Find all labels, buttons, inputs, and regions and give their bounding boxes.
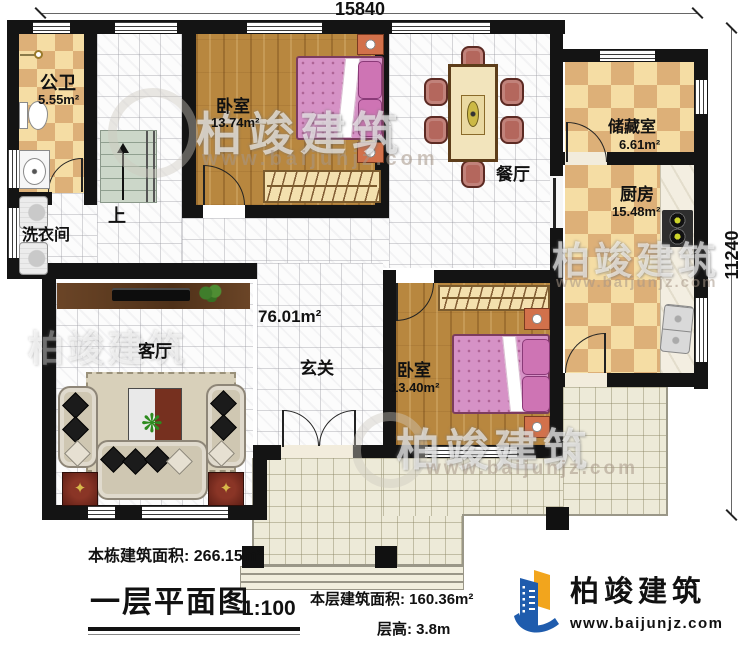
bathroom-label: 公卫 bbox=[40, 74, 76, 92]
title-underline-thin bbox=[88, 634, 300, 635]
cabinet-plant bbox=[198, 284, 224, 302]
coffee-table-plant: ❋ bbox=[141, 410, 163, 436]
living-label: 客厅 bbox=[138, 343, 172, 360]
total-building-area: 本栋建筑面积: 266.15m² bbox=[88, 549, 262, 565]
wall-bedroom1-south bbox=[245, 205, 389, 218]
title-underline bbox=[88, 627, 300, 631]
company-logo-name: 柏竣建筑 bbox=[570, 578, 706, 607]
bedroom1-pillow bbox=[358, 99, 382, 137]
wall-kitchen-south bbox=[552, 373, 565, 387]
bedroom1-area: 13.74m² bbox=[211, 116, 259, 129]
end-table: ✦ bbox=[208, 472, 244, 506]
window-west bbox=[8, 150, 19, 188]
bedroom2-nightstand bbox=[524, 308, 550, 330]
bedroom2-nightstand bbox=[524, 416, 550, 438]
floor-height: 层高: 3.8m bbox=[377, 622, 450, 637]
dining-kitchen-door-leaf bbox=[553, 178, 556, 228]
end-table: ✦ bbox=[62, 472, 98, 506]
scale-value: 1:100 bbox=[242, 598, 296, 619]
bedroom1-nightstand bbox=[357, 34, 384, 55]
corridor-floor bbox=[182, 218, 389, 268]
foyer-label: 玄关 bbox=[300, 360, 334, 377]
wall-bathroom-east bbox=[84, 33, 97, 205]
window-living-south bbox=[88, 506, 115, 519]
window-storage-east bbox=[695, 80, 707, 114]
wall-bedroom2-north bbox=[434, 270, 563, 283]
porch-step bbox=[240, 574, 464, 582]
bedroom2-door-leaf bbox=[396, 283, 398, 321]
wall-entry-left bbox=[253, 445, 281, 460]
hall-area: 76.01m² bbox=[258, 308, 321, 325]
terrace-column bbox=[546, 507, 569, 530]
tv bbox=[112, 288, 190, 301]
bedroom1-door-leaf bbox=[203, 165, 205, 205]
dining-chair bbox=[500, 78, 524, 106]
dining-label: 餐厅 bbox=[496, 166, 530, 183]
foyer-floor bbox=[257, 263, 383, 445]
dining-chair bbox=[424, 78, 448, 106]
dining-chair bbox=[424, 116, 448, 144]
table-centerpiece bbox=[467, 101, 479, 127]
bedroom2-label: 卧室 bbox=[397, 362, 431, 379]
stair-arrow-shaft bbox=[122, 152, 124, 200]
company-logo-icon bbox=[506, 566, 564, 638]
wall-storage-south bbox=[607, 152, 708, 165]
porch-step bbox=[240, 566, 464, 574]
window-living-south bbox=[142, 506, 228, 519]
window-bedroom2-south bbox=[425, 446, 517, 457]
bathroom-door-leaf bbox=[81, 158, 83, 192]
floor-area: 本层建筑面积: 160.36m² bbox=[310, 592, 473, 607]
terrace-border bbox=[462, 516, 464, 566]
window-kitchen-east bbox=[695, 298, 707, 362]
storage-door-leaf bbox=[566, 122, 568, 162]
kitchen-sink bbox=[660, 304, 695, 355]
stair-arrow-head bbox=[117, 143, 129, 153]
washing-machine bbox=[19, 196, 48, 229]
porch-step bbox=[240, 582, 464, 590]
bedroom2-pillow bbox=[522, 376, 550, 412]
wall-bedroom2-east bbox=[550, 283, 563, 458]
toilet-tank bbox=[19, 102, 28, 129]
wall-living-west bbox=[42, 279, 56, 520]
window-storage-north bbox=[600, 50, 655, 61]
entry-door-opening bbox=[281, 445, 353, 458]
dining-kitchen-opening bbox=[550, 176, 563, 228]
window-north bbox=[392, 22, 490, 33]
window-west bbox=[8, 208, 19, 258]
wall-entry-right bbox=[353, 445, 383, 458]
kitchen-label: 厨房 bbox=[620, 186, 654, 203]
kitchen-area: 15.48m² bbox=[612, 205, 660, 218]
dimension-right-value: 11240 bbox=[723, 210, 743, 300]
stairs-up-label: 上 bbox=[108, 207, 126, 225]
towel-ring bbox=[34, 50, 43, 59]
dimension-top-value: 15840 bbox=[320, 0, 400, 18]
window-north bbox=[115, 22, 177, 33]
bedroom2-area: 13.40m² bbox=[391, 381, 439, 394]
bedroom1-label: 卧室 bbox=[216, 98, 250, 115]
bedroom1-wardrobe-rail bbox=[267, 185, 377, 187]
bedroom1-nightstand bbox=[357, 142, 384, 163]
bathroom-area: 5.55m² bbox=[38, 93, 79, 106]
entry-door-leaf bbox=[354, 410, 356, 447]
bedroom1-pillow bbox=[358, 61, 382, 99]
kitchen-door-opening bbox=[565, 373, 607, 387]
dining-chair bbox=[500, 116, 524, 144]
porch-column bbox=[375, 546, 397, 568]
wall-storage-south bbox=[552, 152, 565, 165]
company-logo-website: www.baijunjz.com bbox=[570, 616, 723, 631]
wall-bedroom1-west bbox=[182, 33, 196, 218]
dining-chair bbox=[461, 160, 485, 188]
kitchen-door-leaf bbox=[604, 333, 606, 373]
floor-plan-title: 一层平面图 bbox=[90, 588, 250, 618]
floor-plan-page: ❋ ✦ ✦ 柏竣建筑 www.baijunjz.com 柏竣建筑 柏竣建筑 ww… bbox=[0, 0, 750, 646]
bedroom2-pillow bbox=[522, 339, 550, 375]
wall-bedroom2-west bbox=[383, 270, 396, 458]
terrace-east-floor bbox=[563, 387, 668, 516]
window-north bbox=[247, 22, 322, 33]
stove bbox=[662, 210, 693, 247]
wall-kitchen-south bbox=[607, 373, 708, 387]
entry-door-leaf bbox=[282, 410, 284, 447]
storage-area: 6.61m² bbox=[619, 138, 660, 151]
stair-railing bbox=[146, 131, 155, 202]
storage-label: 储藏室 bbox=[608, 120, 656, 136]
wall-bedroom1-south bbox=[182, 205, 203, 218]
bedroom2-wardrobe-rail bbox=[442, 297, 546, 299]
window-north bbox=[33, 22, 70, 33]
laundry-label: 洗衣间 bbox=[22, 228, 70, 244]
bathroom-sink-basin bbox=[23, 158, 46, 185]
washing-machine bbox=[19, 242, 48, 275]
terrace-border bbox=[666, 387, 668, 516]
